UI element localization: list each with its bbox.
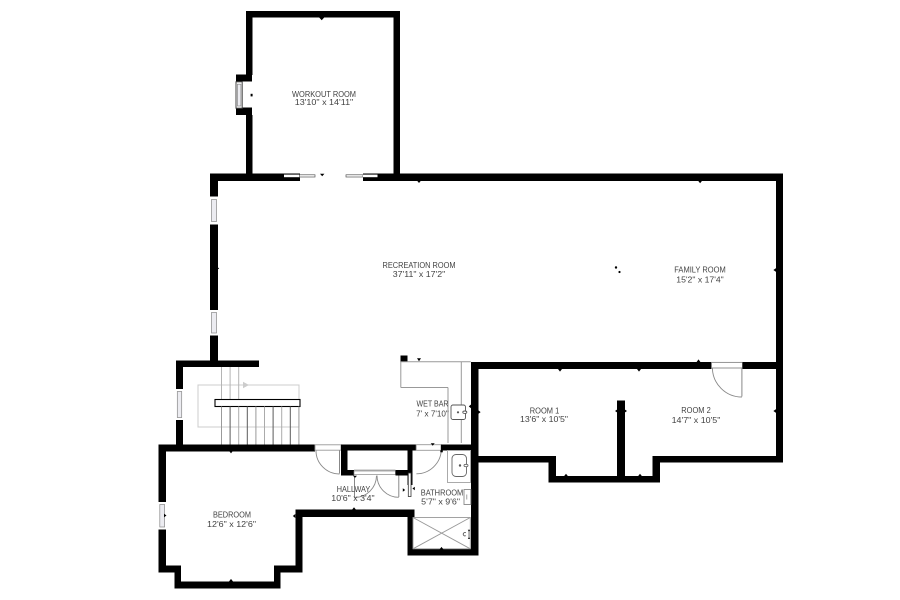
svg-text:7' x 7'10": 7' x 7'10"	[416, 409, 449, 418]
svg-text:ROOM 2: ROOM 2	[681, 406, 711, 415]
svg-text:RECREATION ROOM: RECREATION ROOM	[383, 261, 456, 270]
svg-text:FAMILY ROOM: FAMILY ROOM	[674, 266, 726, 275]
svg-text:10'6" x 3'4": 10'6" x 3'4"	[331, 494, 375, 503]
svg-text:15'2" x 17'4": 15'2" x 17'4"	[676, 275, 724, 284]
svg-text:14'7" x 10'5": 14'7" x 10'5"	[672, 416, 721, 425]
svg-text:HALLWAY: HALLWAY	[337, 485, 371, 494]
svg-text:BEDROOM: BEDROOM	[213, 510, 251, 519]
svg-text:37'11" x 17'2": 37'11" x 17'2"	[393, 270, 446, 279]
svg-text:12'6" x 12'6": 12'6" x 12'6"	[207, 520, 256, 529]
svg-text:BATHROOM: BATHROOM	[421, 488, 464, 497]
svg-text:ROOM 1: ROOM 1	[530, 407, 560, 416]
svg-text:13'6" x 10'5": 13'6" x 10'5"	[520, 415, 568, 424]
svg-text:13'10" x 14'11": 13'10" x 14'11"	[295, 98, 354, 107]
svg-text:WET BAR: WET BAR	[417, 399, 449, 408]
svg-text:5'7" x 9'6": 5'7" x 9'6"	[421, 497, 460, 506]
